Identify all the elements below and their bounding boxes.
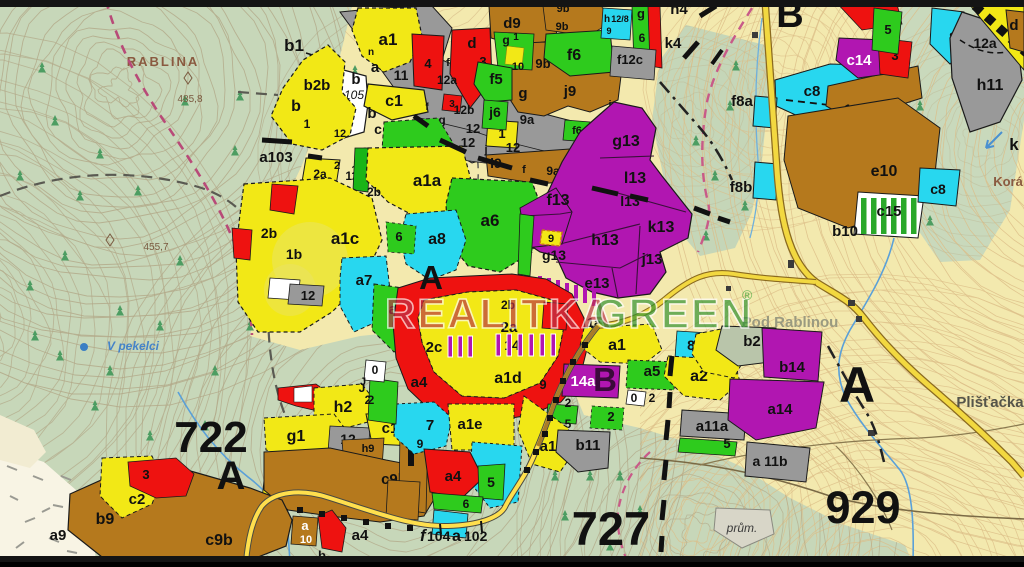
svg-text:d9: d9 <box>503 15 521 32</box>
svg-text:b9: b9 <box>96 511 115 528</box>
svg-text:n: n <box>368 47 374 58</box>
svg-text:b: b <box>351 71 360 88</box>
svg-text:j9: j9 <box>563 83 577 100</box>
svg-text:h13: h13 <box>591 232 619 249</box>
svg-text:5: 5 <box>723 436 730 451</box>
svg-text:12b: 12b <box>454 103 475 117</box>
svg-text:2c: 2c <box>426 339 443 356</box>
svg-text:a1a: a1a <box>413 171 442 190</box>
svg-text:c8: c8 <box>804 83 821 100</box>
svg-text:c9b: c9b <box>205 532 233 549</box>
svg-text:485,8: 485,8 <box>177 94 202 105</box>
svg-text:a11a: a11a <box>696 418 729 435</box>
svg-text:11: 11 <box>394 67 409 83</box>
svg-text:k13: k13 <box>648 219 675 236</box>
svg-text:a4: a4 <box>445 468 462 485</box>
svg-text:d: d <box>1009 17 1018 34</box>
svg-text:12a: 12a <box>437 73 457 87</box>
svg-text:f: f <box>446 57 450 69</box>
svg-text:3: 3 <box>142 467 149 482</box>
svg-text:g: g <box>637 6 645 21</box>
svg-text:12: 12 <box>466 121 480 136</box>
svg-text:c2: c2 <box>129 491 146 508</box>
svg-text:9: 9 <box>606 26 611 36</box>
svg-text:a9: a9 <box>50 527 67 544</box>
svg-text:b: b <box>291 98 301 115</box>
svg-text:a7: a7 <box>356 272 373 289</box>
svg-text:prům.: prům. <box>726 521 758 535</box>
svg-text:2b: 2b <box>261 225 277 241</box>
svg-text:c: c <box>374 121 382 137</box>
svg-text:9a: 9a <box>520 112 535 127</box>
svg-text:h: h <box>604 14 610 25</box>
svg-text:g1: g1 <box>287 428 306 445</box>
svg-text:®: ® <box>742 287 753 303</box>
svg-text:12: 12 <box>334 128 346 140</box>
svg-text:Pod Rablinou: Pod Rablinou <box>742 314 839 331</box>
svg-text:b10: b10 <box>832 223 858 240</box>
svg-text:104: 104 <box>427 528 451 544</box>
svg-text:d: d <box>467 35 476 52</box>
svg-text:b2b: b2b <box>304 77 331 94</box>
svg-text:k4: k4 <box>665 35 682 52</box>
svg-text:2: 2 <box>368 393 375 407</box>
svg-text:a1: a1 <box>608 337 626 354</box>
svg-text:10: 10 <box>512 61 524 73</box>
svg-text:455,7: 455,7 <box>143 242 168 253</box>
svg-text:12: 12 <box>301 288 315 303</box>
svg-text:j: j <box>483 144 487 156</box>
svg-text:B: B <box>593 361 617 398</box>
svg-text:b1: b1 <box>284 36 304 55</box>
svg-text:1: 1 <box>513 32 519 43</box>
svg-text:f8b: f8b <box>730 179 753 196</box>
svg-text:6: 6 <box>395 229 402 244</box>
svg-text:6: 6 <box>463 497 470 511</box>
svg-text:0: 0 <box>372 363 379 377</box>
svg-text:h11: h11 <box>977 77 1004 94</box>
svg-text:a1c: a1c <box>331 229 359 248</box>
svg-text:f8a: f8a <box>731 93 753 110</box>
svg-text:c1: c1 <box>385 93 403 110</box>
svg-text:9: 9 <box>539 377 546 392</box>
svg-text:l13: l13 <box>624 170 646 187</box>
svg-text:12: 12 <box>461 135 475 150</box>
svg-text:7: 7 <box>426 417 434 434</box>
svg-text:Plišťačka: Plišťačka <box>956 394 1024 411</box>
svg-text:0: 0 <box>631 391 638 405</box>
svg-text:g: g <box>518 85 527 102</box>
svg-text:f6: f6 <box>567 47 581 64</box>
svg-text:c15: c15 <box>876 203 901 220</box>
svg-text:V pekelci: V pekelci <box>107 339 160 353</box>
svg-text:a 11b: a 11b <box>752 453 787 469</box>
svg-text:12a: 12a <box>973 35 997 51</box>
svg-text:g: g <box>502 33 509 47</box>
svg-text:g13: g13 <box>542 247 566 263</box>
svg-text:9: 9 <box>417 437 424 451</box>
svg-text:a103: a103 <box>259 149 292 166</box>
svg-text:1b: 1b <box>286 246 302 262</box>
svg-text:a14: a14 <box>767 401 793 418</box>
svg-text:c14: c14 <box>846 52 872 69</box>
svg-text:J: J <box>360 376 366 388</box>
svg-text:929: 929 <box>825 482 900 533</box>
svg-text:h2: h2 <box>334 399 353 416</box>
svg-text:2: 2 <box>334 160 340 172</box>
svg-text:A: A <box>839 357 875 413</box>
svg-text:b: b <box>367 105 376 122</box>
svg-text:a1e: a1e <box>457 416 482 433</box>
svg-text:2: 2 <box>649 391 656 405</box>
svg-text:f13: f13 <box>546 192 569 209</box>
svg-text:j13: j13 <box>641 251 663 268</box>
svg-text:c8: c8 <box>930 181 946 197</box>
svg-text:j6: j6 <box>488 104 501 120</box>
svg-text:4: 4 <box>424 56 432 71</box>
svg-text:727: 727 <box>572 502 650 555</box>
svg-text:5: 5 <box>487 474 495 490</box>
svg-text:12/8: 12/8 <box>611 14 629 24</box>
svg-text:g13: g13 <box>612 133 640 150</box>
svg-text:REALITKA: REALITKA <box>385 290 613 337</box>
svg-text:a4: a4 <box>352 527 369 544</box>
svg-text:RABLINA: RABLINA <box>127 54 200 69</box>
svg-text:10: 10 <box>300 534 312 546</box>
svg-text:Korá: Korá <box>993 174 1023 189</box>
svg-text:6: 6 <box>639 31 646 45</box>
svg-text:1: 1 <box>304 117 311 131</box>
svg-text:a: a <box>452 528 461 545</box>
svg-text:a8: a8 <box>428 231 446 248</box>
svg-text:f12c: f12c <box>617 52 643 67</box>
svg-text:b11: b11 <box>575 437 600 454</box>
svg-text:2: 2 <box>565 396 572 410</box>
svg-text:a5: a5 <box>644 363 661 380</box>
svg-text:f5: f5 <box>489 71 502 88</box>
svg-text:a1: a1 <box>379 30 398 49</box>
svg-text:a: a <box>371 59 380 76</box>
svg-text:b14: b14 <box>779 359 806 376</box>
svg-text:a4: a4 <box>411 374 428 391</box>
svg-text:2: 2 <box>607 409 614 424</box>
svg-text:f: f <box>522 164 526 176</box>
svg-text:e10: e10 <box>871 163 898 180</box>
svg-text:k: k <box>1009 135 1019 154</box>
svg-text:GREEN: GREEN <box>594 290 753 337</box>
svg-text:9: 9 <box>548 233 554 245</box>
svg-text:A: A <box>217 454 246 498</box>
svg-text:a: a <box>301 518 309 533</box>
svg-text:9b: 9b <box>556 21 569 33</box>
svg-text:a1d: a1d <box>494 370 522 387</box>
svg-text:5: 5 <box>884 22 891 37</box>
svg-text:102: 102 <box>464 528 488 544</box>
svg-text:a6: a6 <box>481 211 500 230</box>
